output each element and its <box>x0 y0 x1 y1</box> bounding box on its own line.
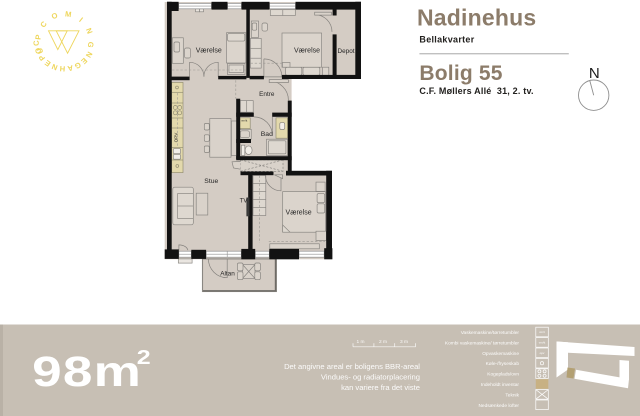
svg-text:2: 2 <box>137 346 151 368</box>
svg-text:Det angivne areal er boligens: Det angivne areal er boligens BBR-areal <box>284 362 420 371</box>
svg-text:C.F. Møllers Allé 31, 2. tv.: C.F. Møllers Allé 31, 2. tv. <box>419 86 533 96</box>
svg-text:Bolig 55: Bolig 55 <box>419 62 502 85</box>
svg-text:Depot: Depot <box>337 48 354 55</box>
svg-text:Værelse: Værelse <box>286 210 312 217</box>
svg-text:OPV: OPV <box>174 132 179 143</box>
svg-text:vm/tt: vm/tt <box>241 119 247 123</box>
svg-text:H: H <box>59 64 65 73</box>
svg-text:3 m: 3 m <box>400 339 408 345</box>
svg-text:TV: TV <box>240 198 248 204</box>
svg-text:Værelse: Værelse <box>196 47 222 54</box>
svg-text:1 m: 1 m <box>357 339 365 345</box>
svg-text:Bellakvarter: Bellakvarter <box>419 35 474 45</box>
svg-text:Nedsænkede lofter: Nedsænkede lofter <box>478 403 519 409</box>
svg-text:vm/tt: vm/tt <box>539 340 546 344</box>
svg-text:Kogeplads/ovn: Kogeplads/ovn <box>487 372 519 378</box>
svg-text:Bad: Bad <box>261 131 273 138</box>
svg-text:Vaskemaskine/tørretumbler: Vaskemaskine/tørretumbler <box>461 330 520 336</box>
svg-text:Teknik: Teknik <box>505 392 519 398</box>
svg-text:Opvaskemaskine: Opvaskemaskine <box>482 351 519 357</box>
svg-text:Indeholdt inventar: Indeholdt inventar <box>481 382 520 388</box>
svg-text:opv: opv <box>540 351 545 355</box>
svg-text:Stue: Stue <box>204 178 218 185</box>
svg-text:Køle-/fryseskab: Køle-/fryseskab <box>486 361 520 367</box>
svg-text:Værelse: Værelse <box>294 48 320 55</box>
svg-text:kan variere fra det viste: kan variere fra det viste <box>341 383 420 392</box>
svg-text:Kombi vaskemaskine/ tørretumbl: Kombi vaskemaskine/ tørretumbler <box>445 340 520 346</box>
svg-text:Vindues- og radiatorplacering: Vindues- og radiatorplacering <box>321 373 420 382</box>
svg-text:vm/t: vm/t <box>539 330 545 334</box>
svg-text:N: N <box>589 65 600 82</box>
svg-text:Entre: Entre <box>259 91 275 98</box>
svg-text:Altan: Altan <box>220 271 235 278</box>
svg-text:Nadinehus: Nadinehus <box>417 5 536 31</box>
svg-text:M: M <box>64 9 72 19</box>
svg-text:98m: 98m <box>32 348 142 396</box>
svg-text:2 m: 2 m <box>379 339 387 345</box>
